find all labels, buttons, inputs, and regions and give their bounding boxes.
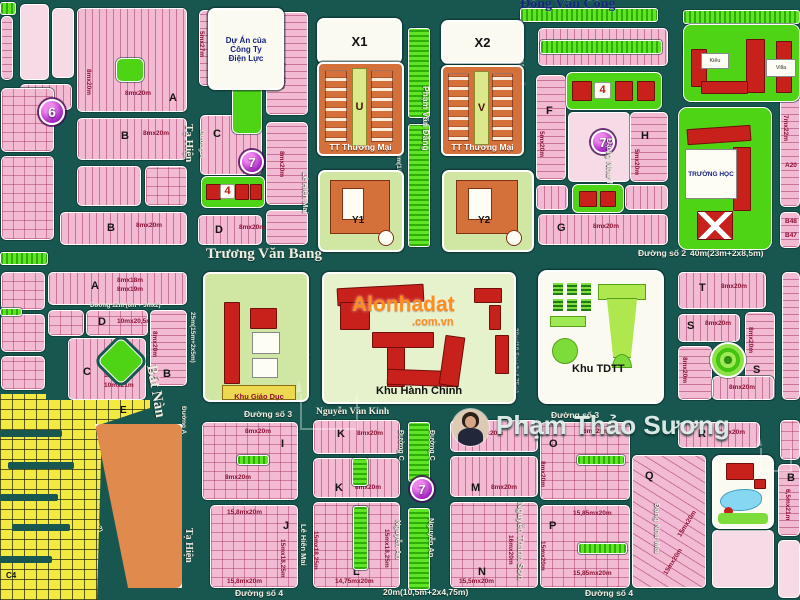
building-icon — [572, 81, 592, 101]
plot-dimension-label: 8mx20m — [239, 225, 265, 232]
pool-icon — [506, 230, 522, 246]
courtyard-icon — [252, 332, 280, 354]
plot-dimension-label: 8mx20m — [125, 91, 151, 98]
tt-thuong-mai-label: TT Thương Mại — [319, 142, 402, 152]
internal-street — [0, 556, 52, 563]
building-icon — [726, 463, 754, 480]
map-badge-6: 6 — [39, 99, 65, 125]
building-icon — [552, 298, 564, 312]
du-an-line2: Công Ty — [230, 45, 261, 54]
block-letter: I — [281, 439, 284, 450]
block-d: D10mx20,5m — [86, 310, 148, 336]
block-y2-label: Y2 — [478, 216, 490, 226]
building-icon — [687, 125, 752, 145]
khu-tdtt-label: Khu TDTT — [572, 364, 625, 375]
plot-dimension-label: 15,5mx20m — [459, 579, 494, 586]
plot-block: 8mx20m — [712, 376, 774, 400]
street-label-uong-so-2: Đường số 2 — [638, 249, 686, 258]
park-block — [232, 86, 262, 134]
block-a: A8mx18m8mx19m — [48, 272, 187, 305]
green-median-strip — [540, 40, 662, 54]
block-letter: B — [121, 131, 129, 142]
plot-dimension-label: 6,5mx21m — [784, 489, 791, 520]
building-icon — [754, 479, 766, 489]
villa-area: Kiểu Villa — [683, 24, 800, 102]
building-icon — [474, 288, 502, 303]
khu-hanh-chinh-label: Khu Hành Chính — [376, 386, 462, 397]
agent-avatar — [452, 409, 489, 446]
building-icon — [580, 298, 592, 312]
block-letter: M — [471, 483, 480, 494]
block-b: B8mx20m — [60, 212, 187, 245]
green-median-strip — [0, 2, 16, 15]
block-x1: X1 — [317, 18, 402, 64]
block-u-tt-thuong-mai: U TT Thương Mại — [317, 62, 404, 156]
plot-dimension-label: B48 — [785, 219, 797, 226]
badge-4-label: 4 — [599, 84, 605, 96]
street-label-uong-c: Đường C — [397, 430, 404, 461]
building-column-icon — [448, 73, 469, 141]
building-icon — [206, 184, 221, 200]
courtyard-icon — [252, 358, 278, 378]
street-label-pham-van-ang: Phạm Văn Đằng — [422, 86, 431, 151]
plot-block — [625, 185, 668, 210]
street-label-ong-van-cong: Đồng Văn Cống — [520, 0, 615, 12]
plot-dimension-label: 8mx20m — [225, 475, 251, 482]
court-bar-icon — [550, 316, 586, 327]
block-letter: A — [169, 93, 177, 104]
green-median-strip — [237, 455, 269, 465]
plot-block — [1, 272, 45, 310]
alonhadat-watermark-tld-text: .com.vn — [412, 316, 454, 328]
block-v-tt-thuong-mai: V TT Thương Mại — [441, 65, 524, 156]
agent-name-text: Phạm Thảo Sương — [496, 410, 730, 440]
building-icon — [372, 332, 434, 348]
plot-dimension-label: 8mx20m — [151, 331, 158, 357]
building-icon — [235, 184, 249, 200]
building-icon — [250, 184, 262, 200]
building-icon — [615, 81, 633, 101]
plot-dimension-label: 8mx18m — [117, 278, 143, 285]
plot-dimension-label: 15mx20m — [677, 510, 698, 539]
map-badge-7: 7 — [240, 150, 264, 174]
avatar-suit-icon — [458, 428, 483, 446]
block-letter: H — [641, 131, 649, 142]
du-an-line3: Điện Lực — [229, 54, 264, 63]
plot-block — [778, 540, 800, 598]
plot-dimension-label: 8mx20m — [539, 461, 546, 487]
block-v-strip: V — [474, 71, 489, 145]
tt-thuong-mai-label: TT Thương Mại — [443, 142, 522, 152]
plot-dimension-label: 5mx20m — [538, 131, 545, 157]
plot-dimension-label: 7mx22m — [782, 115, 789, 141]
block-letter: C — [213, 129, 221, 140]
block-b: B8mx20m — [77, 118, 187, 160]
khu-giao-duc-label: Khu Giáo Dục — [234, 392, 284, 401]
pool-circle-icon — [552, 338, 578, 364]
plot-dimension-label: 15,8mx20m — [227, 510, 262, 517]
plot-block — [1, 314, 45, 352]
building-icon — [637, 81, 655, 101]
plot-dimension-label: 8mx20m — [721, 284, 747, 291]
plot-dimension-label: 8mx20m — [729, 385, 755, 392]
plot-dimension-label: 8mx20m — [136, 223, 162, 230]
street-label-20m-10-5m-2x4-75m: 20m(10,5m+2x4,75m) — [383, 588, 468, 597]
plot-block — [77, 166, 141, 206]
plot-block — [1, 356, 45, 390]
green-block-4: 4 — [201, 176, 265, 208]
plot-dimension-label: 8mx20m — [143, 131, 169, 138]
building-icon — [746, 39, 765, 93]
plot-block — [145, 166, 187, 206]
building-column-icon — [492, 73, 513, 141]
street-label-ta-hien: Tạ Hiện — [183, 528, 193, 563]
villa-label-chip: Villa — [766, 59, 796, 77]
park-block — [116, 58, 144, 82]
building-icon — [566, 298, 578, 312]
truong-hoc-label: TRƯỜNG HỌC — [688, 171, 734, 178]
green-median-strip — [408, 422, 430, 482]
school-name-box: TRƯỜNG HỌC — [685, 149, 737, 199]
khu-hanh-chinh-area: Khu Hành Chính — [322, 272, 516, 404]
internal-street — [0, 494, 58, 501]
khu-tdtt-area: Khu TDTT — [538, 270, 664, 404]
block-letter: P — [549, 521, 556, 532]
street-label-uong-so-4: Đường số 4 — [235, 589, 283, 598]
plot-dimension-label: 15mx18,25m — [383, 529, 390, 568]
plot-dimension-label: 8mx20m — [85, 69, 92, 95]
block-letter: C — [83, 367, 91, 378]
stadium-body-icon — [602, 298, 642, 358]
block-letter: S — [687, 321, 694, 332]
building-column-icon — [325, 70, 347, 142]
street-label-nguyen-thanh-son: Nguyễn Thanh Sơn — [517, 502, 526, 580]
badge-4-label: 4 — [224, 185, 230, 197]
block-s: S8mx20m — [678, 314, 740, 342]
internal-street — [8, 462, 74, 469]
street-label-ang-nhu-mai: Đặng Như Mai — [654, 503, 662, 554]
green-block-small — [572, 184, 624, 213]
block-letter: B — [107, 223, 115, 234]
plot-dimension-label: 15mx18,25m — [279, 539, 286, 578]
block-b: B6,5mx21m — [778, 464, 800, 536]
plot-dimension-label: 8mx20m — [278, 151, 285, 177]
villa-chip-right-label: Villa — [776, 65, 786, 71]
green-median-strip — [0, 252, 48, 265]
block-g: G8mx20m — [538, 214, 668, 245]
plot-block — [536, 185, 568, 210]
building-icon — [701, 81, 748, 94]
plot-block — [712, 530, 774, 588]
block-x2-label: X2 — [475, 35, 491, 50]
block-letter: D — [98, 317, 106, 328]
green-median-strip — [352, 458, 368, 486]
roundabout-icon — [710, 342, 746, 378]
plot-dimension-label: 15,85mx20m — [573, 511, 612, 518]
internal-street — [0, 430, 62, 437]
street-label-uong-a: Đường A — [198, 130, 205, 158]
villa-chip-left-label: Kiểu — [709, 58, 720, 64]
plot-dimension-label: 16mx20m — [507, 535, 514, 565]
plot-block: B48B47 — [780, 212, 800, 248]
badge-4: 4 — [220, 184, 235, 199]
block-y2: Y2 — [442, 170, 534, 252]
block-d: D8mx20m — [198, 215, 262, 245]
truong-hoc-area: TRƯỜNG HỌC — [678, 107, 772, 250]
plot-block — [52, 8, 74, 78]
building-icon — [250, 308, 277, 329]
yellow-block-c4-label: C4 — [6, 572, 16, 580]
plot-dimension-label: 10mx21m — [104, 383, 134, 390]
block-letter: Q — [645, 471, 654, 482]
plot-dimension-label: 8mx20m — [245, 429, 271, 436]
street-label-25m-15m-2x5m: 25m(15m+2x5m) — [189, 312, 196, 363]
block-letter: B — [163, 369, 171, 380]
planning-map: A8mx20m8mx20mB8mx20mB8mx20m5mx27mC8mx20m… — [0, 0, 800, 600]
street-label-uong-so-3: Đường số 3 — [244, 410, 292, 419]
agent-name-watermark: Phạm Thảo Sương — [496, 410, 730, 441]
plot-dimension-label: 15mx20m — [539, 541, 546, 571]
block-letter: J — [283, 521, 289, 532]
alonhadat-watermark-text: Alonhadat — [352, 293, 455, 316]
street-label-nguyen-an: Nguyễn An — [395, 520, 403, 559]
green-median-strip — [683, 10, 800, 24]
block-h: H5mx20m — [630, 112, 668, 182]
block-letter: K — [337, 429, 345, 440]
building-icon — [552, 282, 564, 296]
block-x1-label: X1 — [352, 34, 368, 49]
green-median-strip — [353, 506, 368, 570]
map-badge-7: 7 — [410, 477, 434, 501]
khu-giao-duc-chip: Khu Giáo Dục — [222, 385, 296, 400]
block-letter: S — [753, 365, 760, 376]
building-icon — [600, 191, 616, 207]
block-t: T8mx20m — [678, 272, 766, 309]
plot-dimension-label: 8mx20m — [593, 224, 619, 231]
building-icon — [439, 335, 466, 387]
plot-dimension-label: 15mx20m — [663, 548, 684, 577]
watermark-house-icon — [300, 394, 358, 430]
building-icon — [579, 191, 597, 207]
watermark-house-icon — [760, 448, 792, 472]
street-label-uong-so-4: Đường số 4 — [585, 589, 633, 598]
avatar-face-icon — [465, 416, 476, 428]
plot-dimension-label: 15mx18,25m — [312, 531, 319, 570]
street-label-uong-c: Đường C — [428, 430, 435, 461]
plot-block: 8mx20m — [678, 346, 712, 400]
building-x-icon — [697, 211, 733, 240]
building-icon — [489, 305, 501, 330]
street-label-nguyen-an: Nguyễn An — [428, 518, 436, 557]
plot-dimension-label: 8mx19m — [117, 287, 143, 294]
street-label-truong-van-bang: Trương Văn Bang — [206, 247, 322, 262]
du-an-dien-luc-block: Dự Án của Công Ty Điện Lực — [208, 8, 284, 90]
plot-dimension-label: A20 — [785, 163, 797, 170]
alonhadat-watermark-tld: .com.vn — [412, 316, 454, 328]
block-letter: B — [787, 473, 795, 484]
block-y1-label: Y1 — [352, 216, 364, 226]
plot-dimension-label: 8mx20m — [491, 485, 517, 492]
block-j: J15,8mx20m15,8mx20m15mx18,25m — [210, 505, 298, 588]
building-icon — [580, 282, 592, 296]
plot-dimension-label: 8mx20m — [357, 431, 383, 438]
plot-block — [1, 156, 54, 240]
block-v-label: V — [478, 102, 485, 114]
block-u-label: U — [356, 101, 364, 113]
plot-block — [48, 310, 84, 336]
pool-icon — [378, 230, 394, 246]
plot-dimension-label: 5mx20m — [633, 149, 640, 175]
plot-dimension-label: 10mx20,5m — [117, 319, 152, 326]
plot-dimension-label: 15,8mx20m — [227, 579, 262, 586]
stadium-top-icon — [598, 284, 646, 300]
block-letter: D — [215, 225, 223, 236]
building-icon — [566, 282, 578, 296]
plot-block — [20, 4, 49, 80]
block-f: F5mx20m — [536, 75, 566, 180]
plot-block — [266, 210, 308, 245]
block-x2: X2 — [441, 20, 524, 64]
plot-dimension-label: 15,85mx20m — [573, 571, 612, 578]
villa-label-chip: Kiểu — [701, 53, 729, 69]
street-label-le-hien-mai: Lê Hiến Mai — [300, 524, 308, 566]
plot-dimension-label: 8mx20m — [681, 357, 688, 383]
building-column-icon — [371, 70, 393, 142]
plot-dimension-label: B47 — [785, 233, 797, 240]
block-letter: N — [478, 567, 486, 578]
green-median-strip — [577, 455, 625, 465]
alonhadat-watermark: Alonhadat — [352, 293, 455, 317]
building-icon — [495, 335, 509, 374]
plot-dimension-label: 8mx20m — [747, 327, 754, 353]
block-letter: A — [91, 281, 99, 292]
street-label-le-hien-mai: Lê Hiến Mai — [302, 172, 310, 214]
street-label-uong-12m-6m-3mx2: Đường 12m (6m + 3mx2) — [90, 303, 160, 309]
plot-dimension-label: 8mx20m — [705, 321, 731, 328]
building-icon — [224, 302, 240, 384]
block-m: M8mx20m — [450, 456, 538, 497]
green-median-strip — [578, 543, 627, 554]
block-u-strip: U — [352, 68, 367, 146]
block-letter: T — [699, 283, 706, 294]
plot-dimension-label: 5mx27m — [198, 31, 205, 57]
yellow-block-e-label: E — [120, 406, 127, 416]
block-q: Q15mx20m15mx20m — [632, 455, 706, 588]
street-label-40m-23m-2x8-5m: 40m(23m+2x8,5m) — [690, 249, 763, 258]
green-median-strip — [0, 308, 22, 316]
lawn-icon — [718, 513, 768, 524]
street-label-ta-hien: Tạ Hiện — [183, 124, 194, 162]
plot-block — [1, 16, 13, 80]
khu-giao-duc-area: Khu Giáo Dục — [203, 272, 309, 402]
badge-4: 4 — [594, 82, 611, 99]
orange-zone — [95, 424, 182, 588]
plot-block — [782, 272, 800, 400]
block-y1: Y1 — [318, 170, 404, 252]
du-an-line1: Dự Án của — [226, 36, 266, 45]
block-letter: G — [557, 223, 566, 234]
internal-street — [12, 524, 70, 531]
block-letter: K — [335, 483, 343, 494]
green-block-4: 4 — [566, 72, 662, 110]
plot-dimension-label: 14,75mx20m — [335, 579, 374, 586]
block-letter: F — [546, 106, 553, 117]
